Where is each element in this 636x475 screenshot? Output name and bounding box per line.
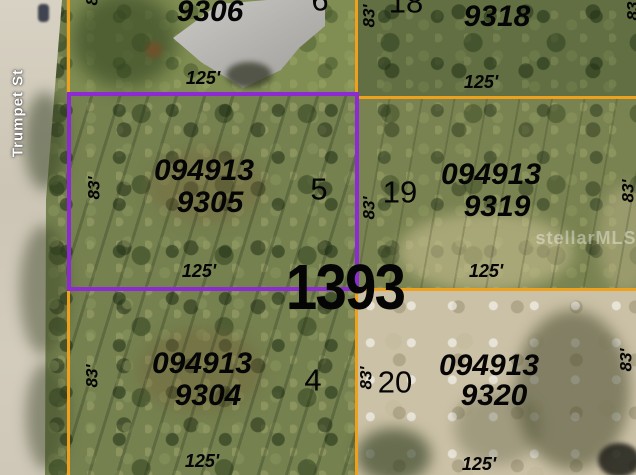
parcel-9319-id-line1: 094913	[441, 160, 541, 190]
parcel-9320-id-line1: 094913	[439, 351, 539, 381]
parcel-9304-id-line2: 9304	[175, 381, 242, 411]
driveway-shadow-blob	[226, 62, 272, 88]
rust-tree-blob	[146, 42, 162, 58]
lot-19-number: 19	[383, 177, 417, 208]
lot-18-number: 18	[389, 0, 423, 18]
parcel-9320-id-line2: 9320	[461, 381, 528, 411]
block-number-1393: 1393	[286, 255, 404, 319]
lot-4-number: 4	[304, 365, 321, 396]
parcel-9305-id-line1: 094913	[154, 156, 254, 186]
dark-structure-bottom-right	[598, 443, 636, 475]
dim-83-top-center: 83'	[361, 5, 378, 28]
bush-blob-lot20	[356, 428, 431, 475]
dim-83-between-5-19: 83'	[361, 197, 378, 220]
dim-83-lot4: 83'	[84, 365, 101, 388]
lot-5-number: 5	[310, 174, 327, 205]
dim-125-9305: 125'	[182, 262, 216, 280]
road-tree-shadow-3	[26, 362, 68, 470]
parcel-9319-id-line2: 9319	[464, 192, 531, 222]
dim-125-9318: 125'	[464, 73, 498, 91]
road-tree-shadow-2	[20, 225, 68, 355]
parcel-9304-id-line1: 094913	[152, 349, 252, 379]
dim-125-9320: 125'	[462, 455, 496, 473]
aerial-parcel-map: Trumpet St 83' 9306 6 125' 83' 18 9318 8…	[0, 0, 636, 475]
dim-83-top-left-clipped: 83'	[84, 0, 101, 5]
parcel-9305-id-line2: 9305	[177, 188, 244, 218]
dim-125-9319: 125'	[469, 262, 503, 280]
dim-83-right-9319: 83'	[620, 180, 636, 203]
parcel-9318-id: 9318	[464, 2, 531, 32]
boundary-line-north-east	[355, 96, 636, 99]
dim-125-9306: 125'	[186, 69, 220, 87]
street-name-label: Trumpet St	[11, 69, 26, 157]
vehicle-on-road	[38, 4, 49, 22]
dim-83-top-right-clipped: 83'	[625, 0, 636, 20]
lot-6-number: 6	[311, 0, 328, 16]
dim-83-right-9320: 83'	[618, 349, 635, 372]
road-tree-shadow-1	[24, 92, 66, 190]
lot-20-number: 20	[378, 367, 412, 398]
parcel-9306-id: 9306	[177, 0, 244, 27]
dim-83-lot5: 83'	[86, 177, 103, 200]
mls-watermark: stellarMLS	[535, 229, 636, 247]
dim-83-between-4-20: 83'	[358, 367, 375, 390]
dim-125-9304: 125'	[185, 452, 219, 470]
